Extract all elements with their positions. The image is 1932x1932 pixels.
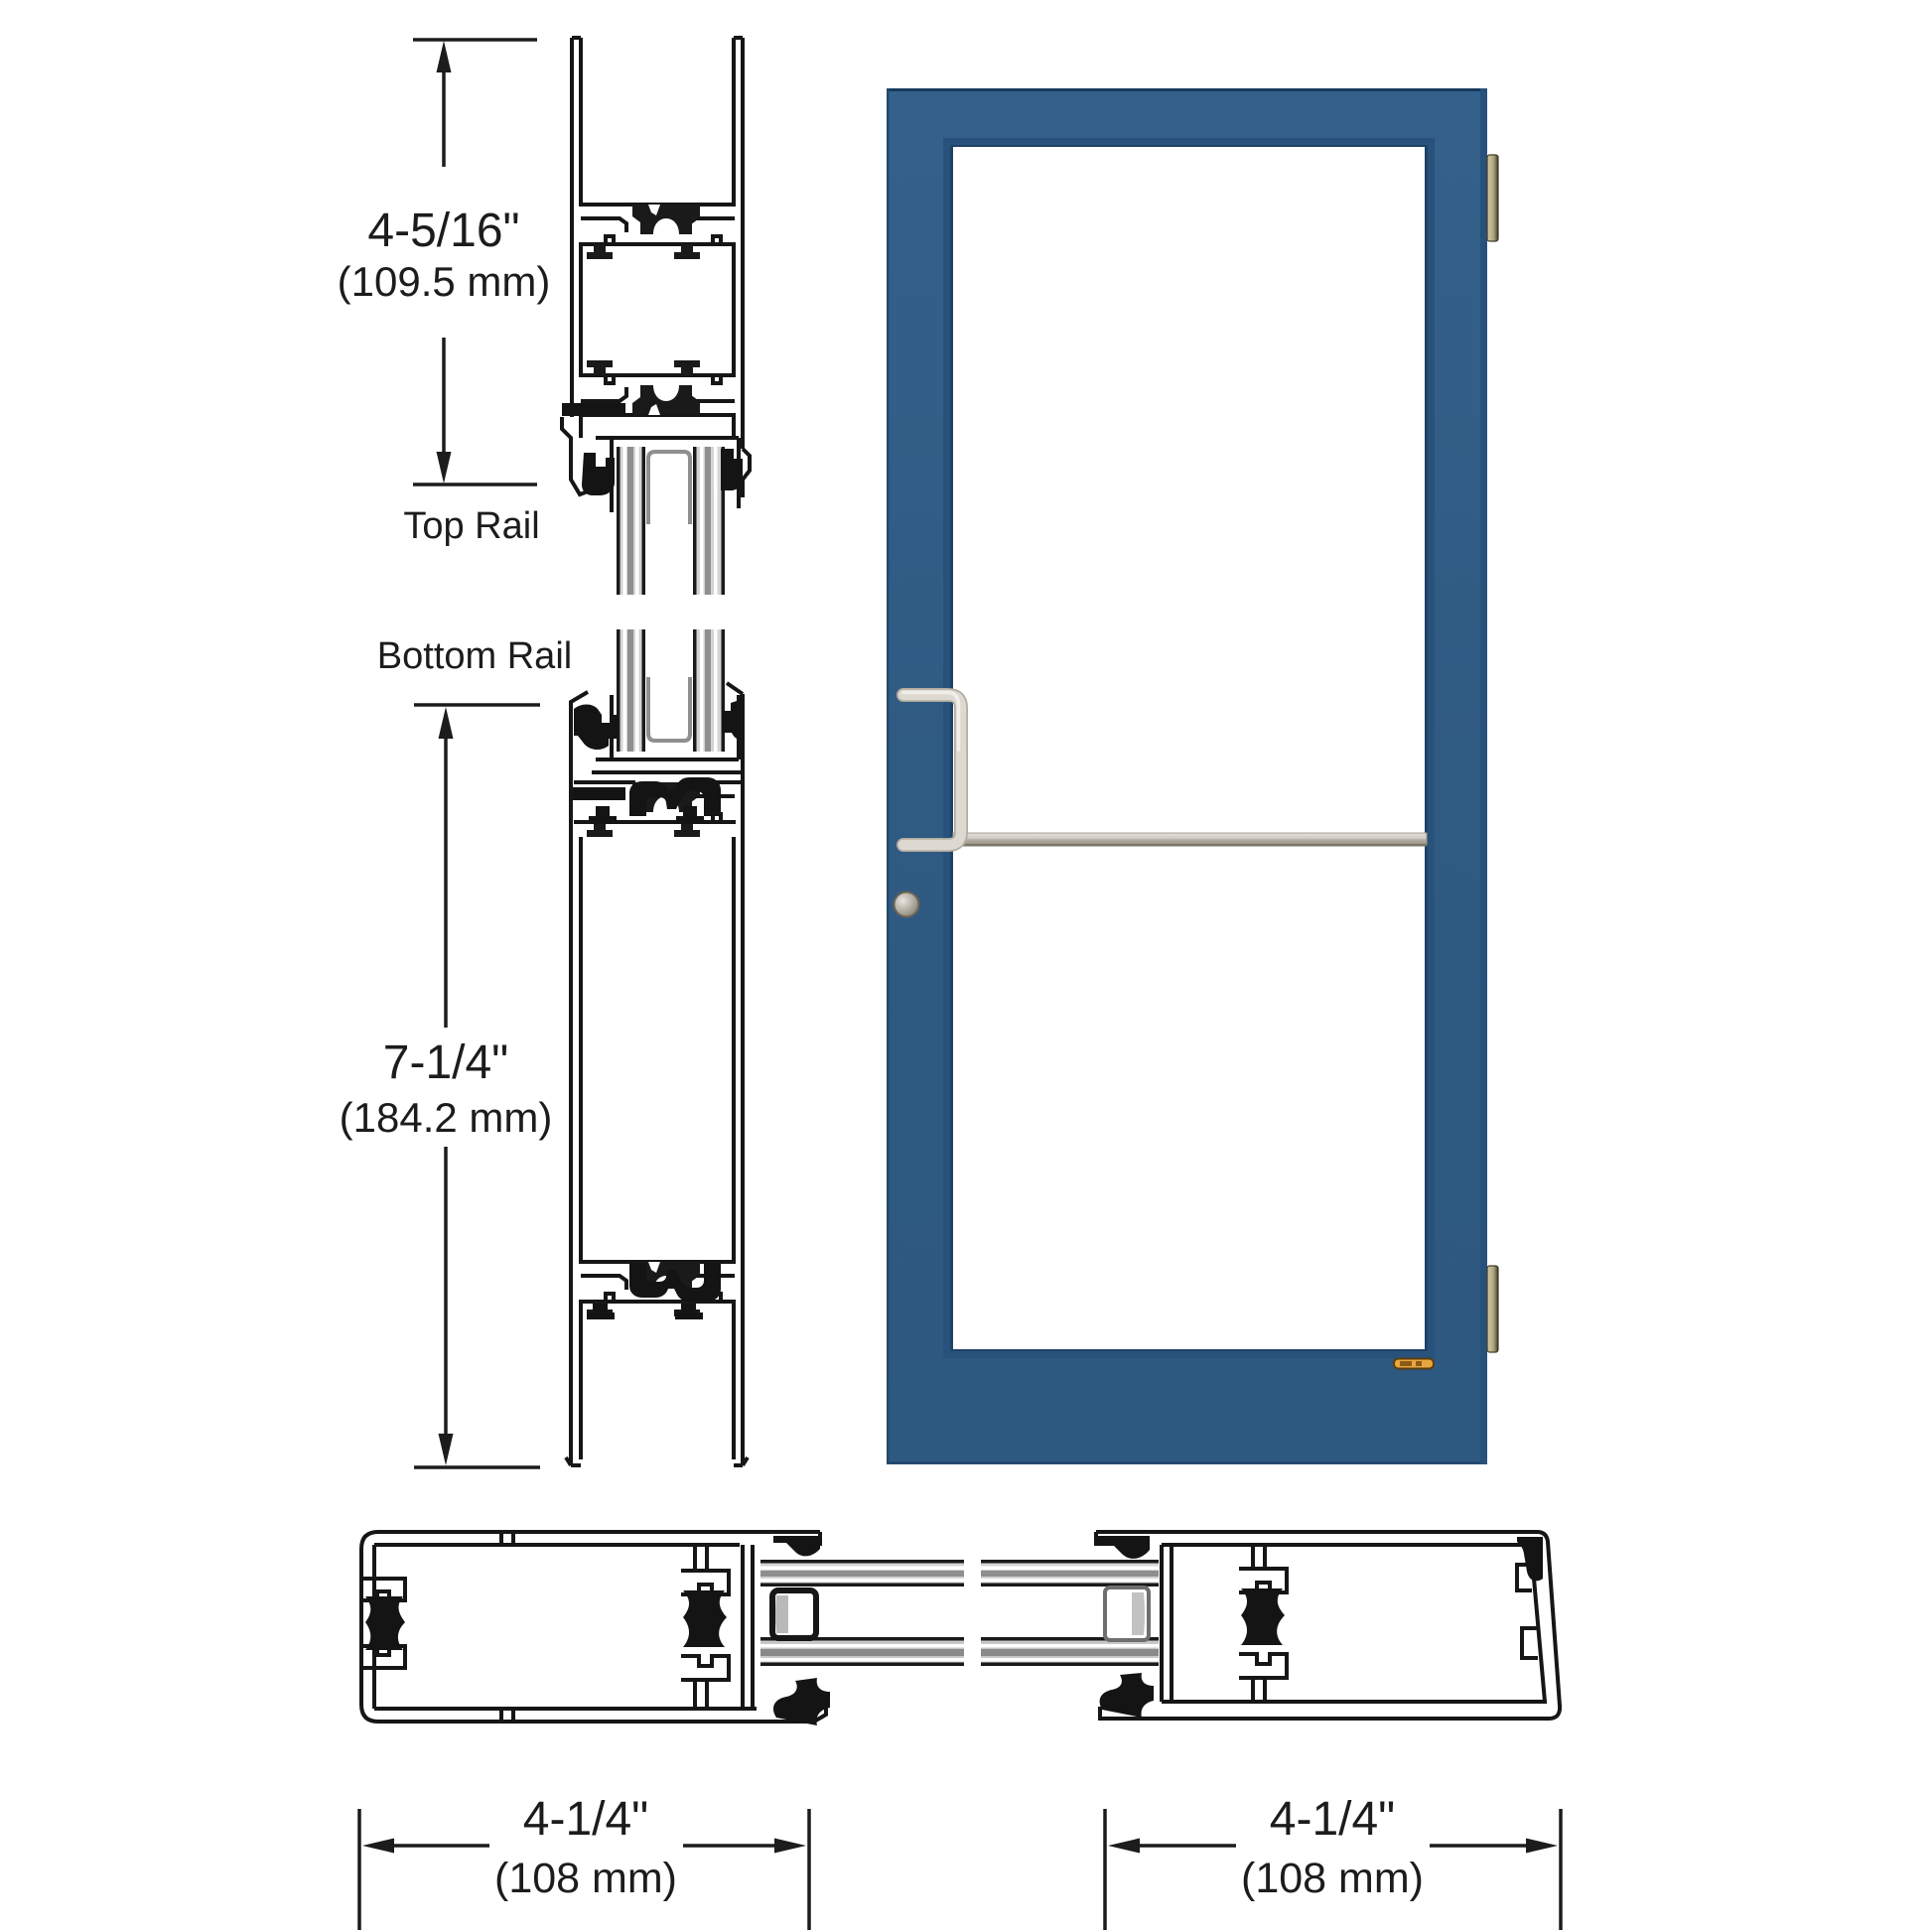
svg-text:(184.2 mm): (184.2 mm) <box>340 1094 553 1141</box>
svg-text:4-1/4": 4-1/4" <box>523 1793 648 1846</box>
svg-text:4-5/16": 4-5/16" <box>367 205 519 257</box>
svg-text:(108 mm): (108 mm) <box>1241 1855 1424 1902</box>
svg-text:4-1/4": 4-1/4" <box>1270 1793 1395 1846</box>
svg-text:7-1/4": 7-1/4" <box>383 1036 508 1089</box>
svg-text:Bottom Rail: Bottom Rail <box>377 635 572 677</box>
svg-text:(108 mm): (108 mm) <box>494 1855 677 1902</box>
svg-text:Top Rail: Top Rail <box>403 505 539 547</box>
svg-text:(109.5 mm): (109.5 mm) <box>338 258 551 305</box>
